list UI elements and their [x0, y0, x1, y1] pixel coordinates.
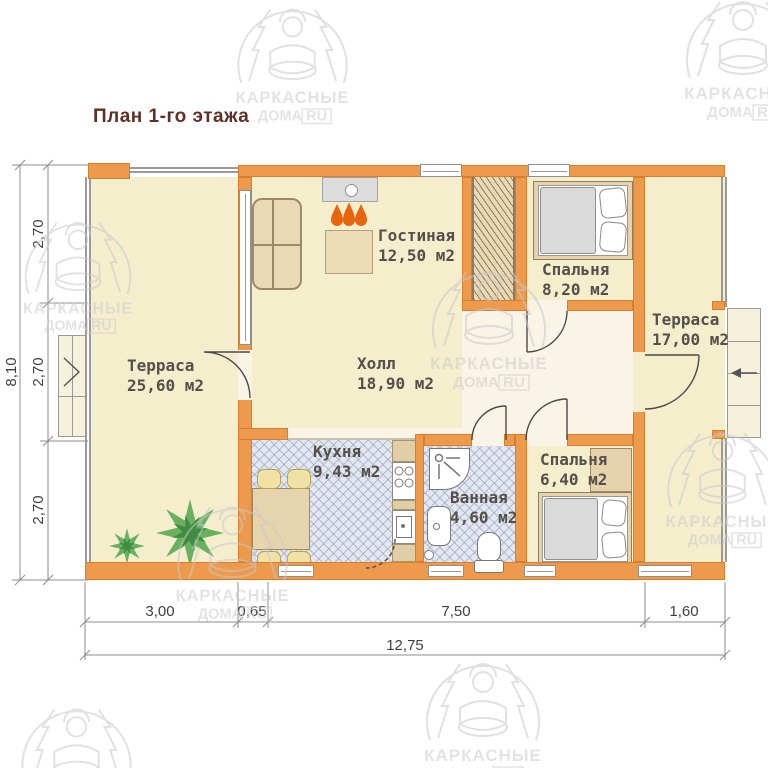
terrace-post-top-left: [88, 163, 130, 179]
room-name: Спальня: [542, 260, 609, 280]
svg-text:RU: RU: [736, 533, 757, 549]
fireplace-flue: [345, 184, 358, 197]
dim-7-50: 7,50: [441, 603, 470, 620]
entrance-steps-left: [58, 335, 86, 437]
kitchen-counter: [392, 440, 416, 462]
room-name: Кухня: [313, 442, 380, 462]
label-living: Гостиная 12,50 м2: [378, 226, 455, 266]
railing-terrace-left-top: [130, 167, 238, 173]
window-bottom-4: [638, 565, 692, 577]
dim-total-width: 12,75: [386, 637, 424, 654]
svg-text:ДОМА: ДОМА: [707, 104, 753, 121]
washbasin: [427, 506, 451, 546]
blanket: [540, 187, 596, 254]
dim-2-70-a: 2,70: [30, 219, 47, 248]
shower-icon: [430, 449, 468, 487]
dim-3-00: 3,00: [145, 603, 174, 620]
wall-stairs-bedroom1: [515, 177, 527, 311]
room-name: Терраса: [127, 356, 204, 376]
stove: [392, 462, 416, 500]
steps-divider: [72, 336, 73, 436]
dim-1-60: 1,60: [669, 603, 698, 620]
room-area: 9,43 м2: [313, 462, 380, 482]
label-terrace-right: Терраса 17,00 м2: [652, 310, 729, 350]
watermark-text-3: RU: [306, 109, 327, 125]
railing-terrace-right-b: [721, 438, 727, 562]
chair: [257, 469, 281, 489]
washer-knob: [424, 550, 434, 560]
flame-icon: [331, 203, 367, 230]
label-kitchen: Кухня 9,43 м2: [313, 442, 380, 482]
plant-small: [109, 528, 145, 564]
kitchen-counter: [392, 544, 416, 562]
watermark-text-2: ДОМА: [258, 109, 303, 125]
room-terrace-right: [645, 177, 725, 562]
chair: [287, 469, 311, 489]
pillow: [601, 499, 628, 527]
wall-kitchen-bath: [415, 434, 424, 562]
svg-text:ДОМА: ДОМА: [45, 317, 88, 333]
staircase: [472, 177, 515, 300]
label-bedroom-2: Спальня 6,40 м2: [540, 450, 607, 490]
label-terrace-left: Терраса 25,60 м2: [127, 356, 204, 396]
kitchen-sink: [392, 510, 416, 544]
room-name: Ванная: [450, 488, 517, 508]
sofa: [252, 198, 302, 290]
svg-text:КАРКАСНЫЕ: КАРКАСНЫЕ: [684, 84, 768, 103]
wall-living-stairs: [462, 177, 472, 311]
dining-table: [252, 488, 310, 550]
svg-text:КАРКАСНЫЕ: КАРКАСНЫЕ: [176, 587, 290, 605]
svg-text:КАРКАСНЫЕ: КАРКАСНЫЕ: [424, 746, 542, 765]
page-title: План 1-го этажа: [93, 106, 249, 128]
room-area: 6,40 м2: [540, 470, 607, 490]
svg-text:ДОМА: ДОМА: [198, 607, 243, 623]
shower: [429, 448, 470, 490]
label-bathroom: Ванная 4,60 м2: [450, 488, 517, 528]
watermark-logo: КАРКАСНЫЕ ДОМА RU: [668, 0, 768, 124]
steps-tread: [59, 396, 85, 397]
floor-plan-canvas: План 1-го этажа: [0, 0, 768, 768]
dim-2-70-c: 2,70: [30, 495, 47, 524]
window-living-terrace: [239, 190, 251, 345]
svg-text:RU: RU: [246, 607, 267, 623]
room-area: 17,00 м2: [652, 330, 729, 350]
dim-0-65: 0,65: [237, 603, 266, 620]
watermark-logo: КАРКАСНЫЕ ДОМА RU: [408, 648, 558, 768]
terrace-post-right-1: [712, 301, 725, 310]
wall-bedroom1-hall-b: [567, 300, 633, 311]
steps-tread: [728, 341, 760, 342]
wall-bedroom2-top: [567, 434, 633, 446]
toilet-tank: [474, 560, 504, 573]
railing-terrace-left: [85, 177, 91, 562]
pillow: [601, 531, 627, 559]
wall-bedroom1-hall-a: [462, 300, 527, 311]
entrance-steps-right: [727, 308, 761, 438]
doorway-bedroom1: [527, 300, 567, 311]
wall-living-stub: [238, 428, 288, 440]
railing-terrace-right-a: [721, 177, 727, 307]
room-name: Гостиная: [378, 226, 455, 246]
window-top-2: [528, 164, 570, 177]
pillow: [599, 187, 628, 220]
blanket: [544, 498, 598, 560]
steps-tread: [728, 373, 760, 374]
wall-bottom: [85, 562, 725, 580]
stove-burners: [393, 463, 415, 499]
rug: [325, 230, 373, 274]
wall-bath-top-b: [504, 434, 515, 446]
dim-2-70-b: 2,70: [30, 357, 47, 386]
room-area: 18,90 м2: [357, 374, 434, 394]
toilet: [477, 532, 501, 562]
window-bottom-2: [428, 565, 464, 577]
steps-tread: [728, 405, 760, 406]
kitchen-counter: [392, 500, 416, 510]
room-area: 8,20 м2: [542, 280, 609, 300]
wall-top: [238, 165, 725, 177]
room-name: Холл: [357, 354, 434, 374]
room-name: Терраса: [652, 310, 729, 330]
label-bedroom-1: Спальня 8,20 м2: [542, 260, 609, 300]
room-name: Спальня: [540, 450, 607, 470]
window-bottom-1: [278, 565, 314, 577]
terrace-post-right-2: [712, 430, 725, 439]
doorway-terrace-left: [238, 350, 252, 400]
room-area: 4,60 м2: [450, 508, 517, 528]
doorway-bedroom2: [527, 434, 567, 446]
room-area: 12,50 м2: [378, 246, 455, 266]
watermark-logo: КАРКАСНЫЕ ДОМА RU: [4, 694, 149, 768]
window-top-1: [420, 164, 462, 177]
wall-bath-top-a: [424, 434, 472, 446]
pillow: [599, 221, 628, 253]
label-hall: Холл 18,90 м2: [357, 354, 434, 394]
plant-large: [156, 499, 224, 567]
doorway-bathroom: [472, 434, 504, 446]
plant-icons: [95, 495, 227, 571]
sink-drain: [401, 524, 405, 528]
watermark-text-1: КАРКАСНЫЕ: [236, 89, 350, 107]
fireplace-unit: [322, 177, 378, 202]
window-bottom-3: [524, 565, 556, 577]
dim-total-height: 8,10: [3, 357, 20, 386]
doorway-terrace-right: [633, 352, 645, 412]
room-area: 25,60 м2: [127, 376, 204, 396]
svg-text:RU: RU: [757, 104, 768, 121]
